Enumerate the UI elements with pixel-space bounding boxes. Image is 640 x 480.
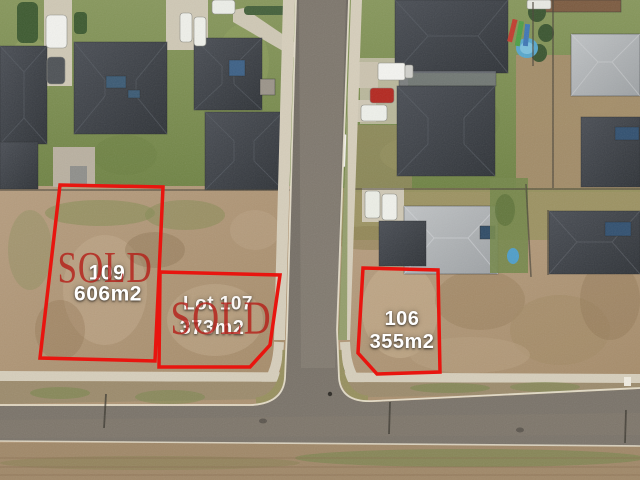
aerial-photo-canvas: [0, 0, 640, 480]
lot-107-sold-stamp: SOLD: [171, 295, 272, 343]
lot-106-number: 106: [385, 309, 420, 329]
photo-grain: [0, 0, 640, 480]
lot-106-area: 355m2: [370, 332, 435, 352]
aerial-subdivision-photo: 109 606m2 Lot 107 373m2 106 355m2 SOLD S…: [0, 0, 640, 480]
lot-109-sold-stamp: SOLD: [57, 246, 152, 290]
